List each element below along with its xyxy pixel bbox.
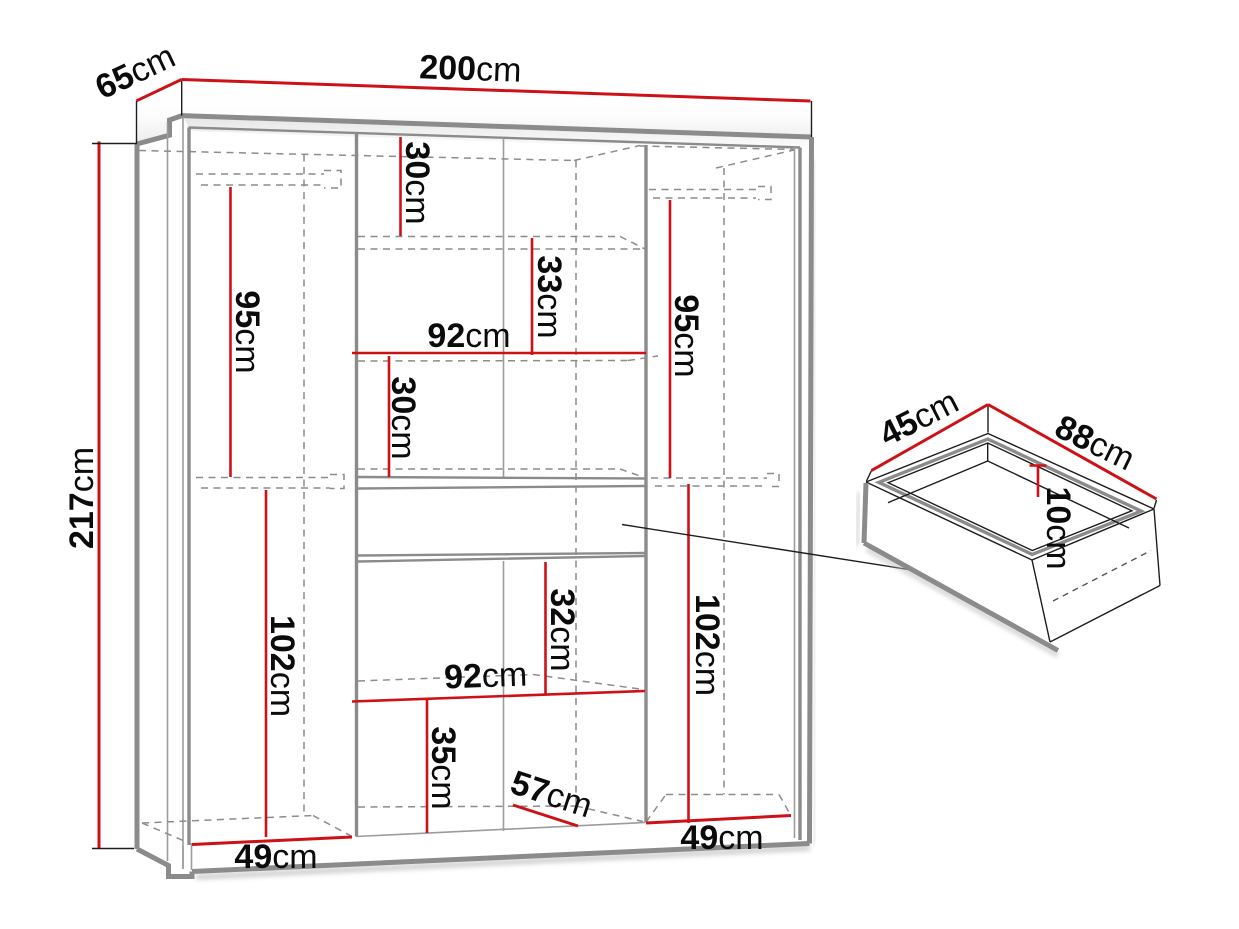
svg-text:217cm: 217cm bbox=[63, 447, 101, 549]
svg-text:102cm: 102cm bbox=[688, 594, 726, 696]
svg-text:95cm: 95cm bbox=[667, 294, 705, 377]
svg-text:102cm: 102cm bbox=[263, 615, 301, 717]
svg-text:49cm: 49cm bbox=[234, 838, 317, 876]
svg-text:30cm: 30cm bbox=[384, 376, 422, 459]
svg-text:95cm: 95cm bbox=[228, 290, 266, 373]
svg-text:49cm: 49cm bbox=[680, 819, 763, 857]
svg-text:33cm: 33cm bbox=[530, 255, 568, 338]
svg-text:35cm: 35cm bbox=[424, 726, 462, 809]
svg-text:32cm: 32cm bbox=[543, 588, 581, 671]
svg-text:10cm: 10cm bbox=[1039, 486, 1077, 569]
svg-text:92cm: 92cm bbox=[427, 317, 510, 355]
svg-text:92cm: 92cm bbox=[443, 656, 527, 697]
svg-text:200cm: 200cm bbox=[419, 48, 522, 90]
svg-text:30cm: 30cm bbox=[398, 141, 436, 224]
